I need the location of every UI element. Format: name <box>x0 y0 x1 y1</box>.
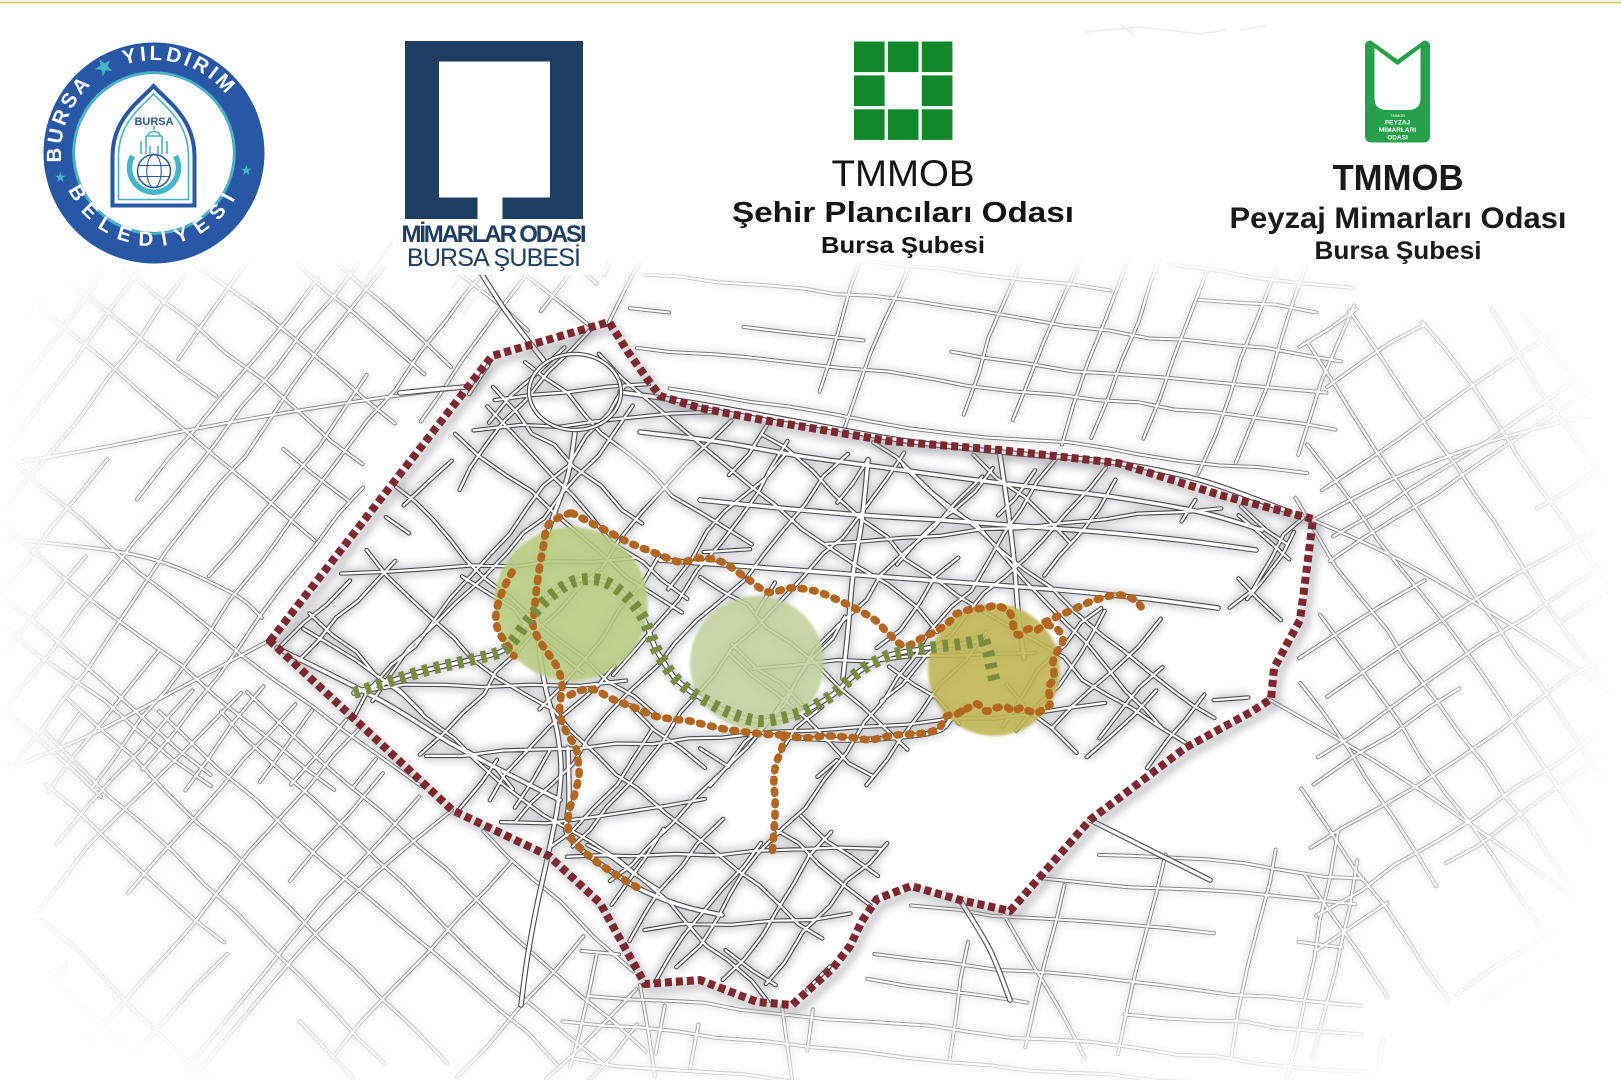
svg-text:★: ★ <box>240 162 253 178</box>
svg-text:ODASI: ODASI <box>1387 135 1408 142</box>
svg-text:TMMOB: TMMOB <box>1333 157 1464 198</box>
svg-text:MİMARLARI: MİMARLARI <box>1379 126 1416 134</box>
svg-text:★: ★ <box>54 169 67 185</box>
svg-text:Peyzaj Mimarları Odası: Peyzaj Mimarları Odası <box>1230 202 1567 235</box>
svg-text:Bursa Şubesi: Bursa Şubesi <box>1315 237 1482 265</box>
svg-text:Şehir Plancıları Odası: Şehir Plancıları Odası <box>732 197 1074 229</box>
svg-text:TMMOB: TMMOB <box>832 153 975 194</box>
svg-text:PEYZAJ: PEYZAJ <box>1385 120 1411 127</box>
svg-text:BURSA ŞUBESİ: BURSA ŞUBESİ <box>407 243 581 272</box>
svg-text:TMMOB: TMMOB <box>1390 113 1405 118</box>
svg-text:Bursa Şubesi: Bursa Şubesi <box>821 232 985 258</box>
